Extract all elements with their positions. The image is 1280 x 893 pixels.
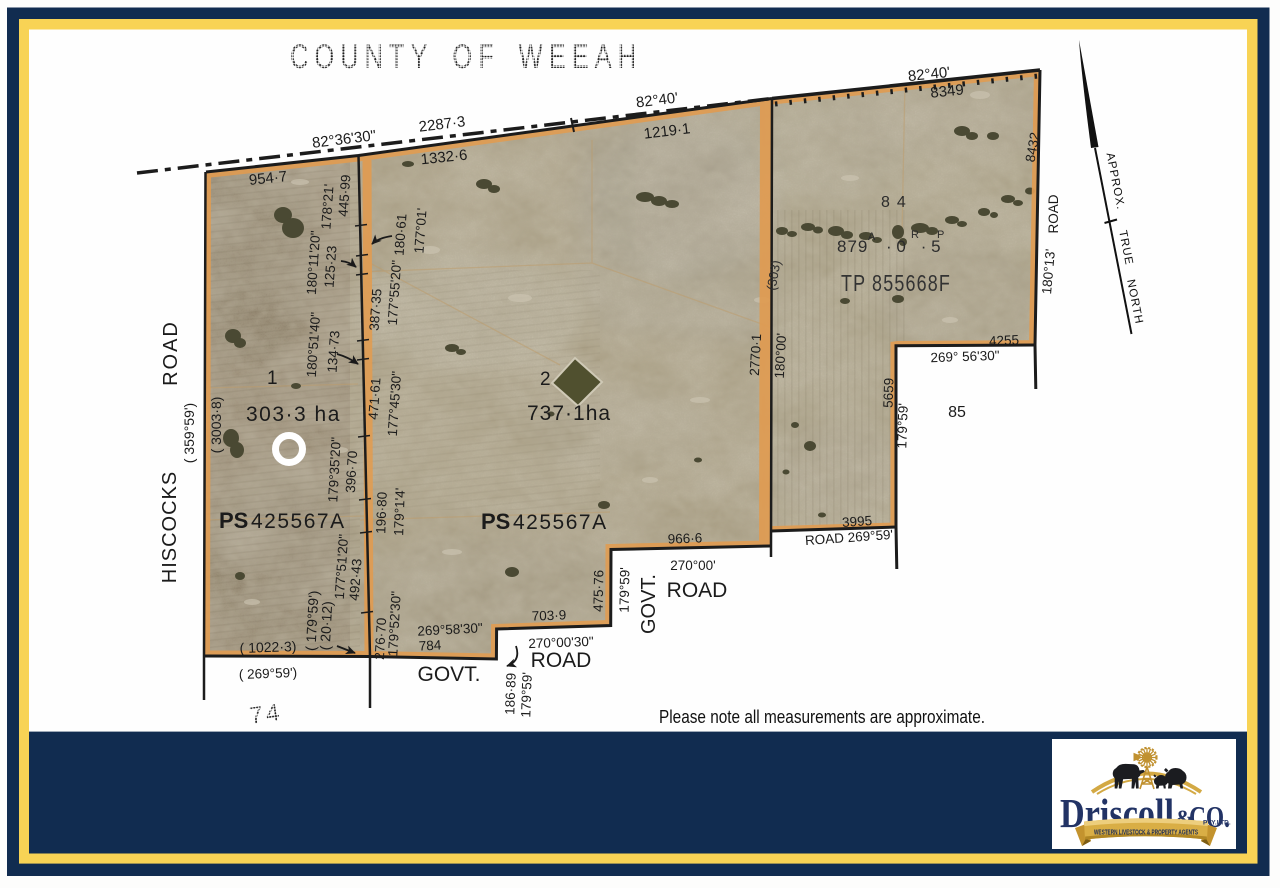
svg-text:1: 1: [267, 368, 278, 389]
svg-text:492·43: 492·43: [347, 558, 365, 601]
svg-text:5659: 5659: [880, 378, 896, 409]
svg-text:( 269°59'): ( 269°59'): [239, 665, 298, 682]
svg-text:396·70: 396·70: [343, 450, 360, 493]
svg-text:737·1ha: 737·1ha: [527, 402, 611, 425]
svg-text:3995: 3995: [842, 513, 873, 530]
svg-text:784: 784: [418, 637, 442, 653]
svg-text:Please note all measurements a: Please note all measurements are approxi…: [659, 706, 985, 727]
svg-text:ROAD: ROAD: [531, 649, 592, 672]
svg-text:179°59': 179°59': [617, 567, 633, 613]
svg-text:ROAD: ROAD: [1046, 194, 1061, 233]
svg-text:TP 855668F: TP 855668F: [841, 270, 951, 296]
svg-text:186·89: 186·89: [502, 673, 518, 716]
svg-text:( 359°59'): ( 359°59'): [181, 403, 197, 463]
svg-text:PS: PS: [481, 509, 510, 534]
svg-text:425567A: 425567A: [251, 510, 346, 533]
svg-text:179°59': 179°59': [518, 672, 535, 718]
svg-text:85: 85: [948, 404, 966, 421]
svg-text:WESTERN LIVESTOCK & PROPERTY A: WESTERN LIVESTOCK & PROPERTY AGENTS: [1094, 830, 1198, 837]
svg-text:180°00': 180°00': [772, 333, 789, 379]
svg-text:( 1022·3): ( 1022·3): [239, 638, 296, 656]
svg-text:8349: 8349: [930, 81, 965, 101]
svg-text:2770·1: 2770·1: [747, 333, 764, 376]
svg-text:196·80: 196·80: [373, 492, 389, 535]
svg-text:445·99: 445·99: [336, 174, 354, 217]
svg-text:269° 56'30": 269° 56'30": [930, 348, 1000, 365]
svg-text:ROAD: ROAD: [160, 320, 182, 386]
svg-text:303·3 ha: 303·3 ha: [246, 403, 341, 426]
svg-text:387·35: 387·35: [367, 288, 385, 331]
svg-text:134·73: 134·73: [325, 330, 343, 373]
svg-text:966·6: 966·6: [668, 530, 703, 546]
svg-text:PS: PS: [219, 508, 248, 533]
svg-text:179°1'4': 179°1'4': [391, 488, 408, 537]
svg-text:425567A: 425567A: [513, 511, 608, 534]
svg-text:2: 2: [540, 369, 551, 390]
svg-text:125·23: 125·23: [322, 245, 340, 288]
svg-text:4255: 4255: [989, 332, 1020, 349]
svg-text:179°59': 179°59': [894, 403, 911, 449]
svg-text:· 0: · 0: [886, 237, 906, 256]
svg-text:879: 879: [837, 237, 868, 256]
svg-text:471·61: 471·61: [366, 377, 384, 420]
svg-text:74: 74: [248, 699, 284, 730]
svg-text:GOVT.: GOVT.: [638, 574, 660, 634]
svg-text:84: 84: [881, 194, 913, 211]
svg-text:177°01': 177°01': [411, 207, 429, 253]
svg-text:HISCOCKS: HISCOCKS: [159, 471, 181, 583]
svg-text:180·61: 180·61: [392, 213, 410, 256]
svg-text:270°00': 270°00': [670, 558, 716, 573]
svg-text:( 3003·8): ( 3003·8): [208, 397, 224, 454]
svg-text:ROAD: ROAD: [667, 579, 728, 602]
svg-text:A: A: [868, 231, 876, 243]
svg-text:P: P: [937, 229, 944, 241]
svg-text:178°21': 178°21': [318, 183, 336, 229]
svg-text:COUNTY OF WEEAH: COUNTY OF WEEAH: [290, 38, 642, 76]
svg-text:703·9: 703·9: [532, 607, 567, 623]
svg-text:GOVT.: GOVT.: [417, 663, 480, 686]
svg-text:475·76: 475·76: [591, 570, 607, 612]
svg-text:( 20·12): ( 20·12): [317, 601, 336, 651]
svg-text:PTY.LTD.: PTY.LTD.: [1203, 820, 1231, 827]
